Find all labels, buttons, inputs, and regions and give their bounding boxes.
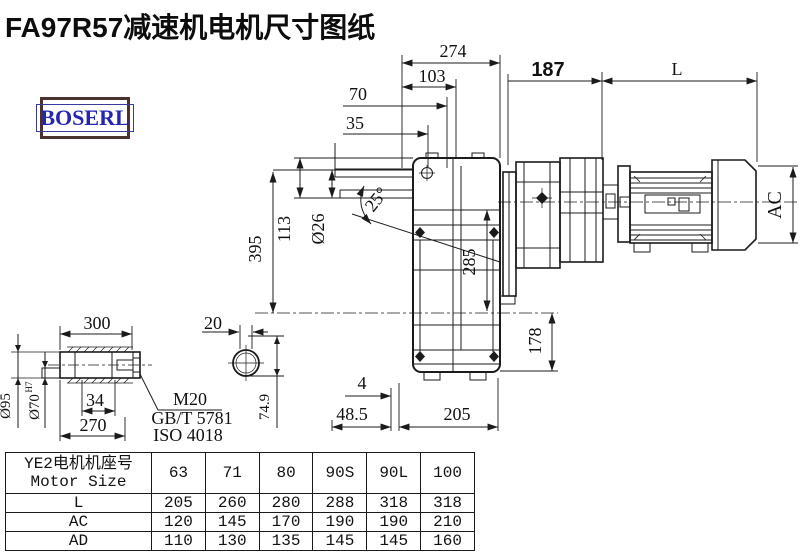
dim-4: 4: [358, 373, 367, 393]
dim-300: 300: [84, 313, 111, 333]
dim-35: 35: [346, 113, 364, 133]
dim-34: 34: [86, 390, 104, 410]
table-cell: 210: [421, 513, 475, 532]
dim-dia70: Ø70: [27, 394, 43, 420]
dim-270: 270: [80, 415, 107, 435]
dim-187: 187: [531, 59, 564, 81]
dim-274: 274: [440, 41, 467, 61]
dim-AC: AC: [764, 191, 786, 219]
col-90S: 90S: [313, 453, 367, 494]
dim-dia95: Ø95: [0, 393, 14, 419]
dim-dia26: Ø26: [308, 214, 328, 245]
dim-205: 205: [444, 404, 471, 424]
table-cell: 280: [259, 494, 313, 513]
dim-178: 178: [525, 328, 545, 355]
col-90L: 90L: [367, 453, 421, 494]
row-label-AC: AC: [6, 513, 152, 532]
table-cell: 190: [313, 513, 367, 532]
dim-285: 285: [459, 249, 479, 276]
table-cell: 130: [205, 532, 259, 551]
dim-103: 103: [419, 66, 446, 86]
table-cell: 170: [259, 513, 313, 532]
table-cell: 260: [205, 494, 259, 513]
dimension-lines: [15, 63, 793, 436]
table-row-AC: AC 120 145 170 190 190 210: [6, 513, 475, 532]
row-label-L: L: [6, 494, 152, 513]
dim-48-5: 48.5: [336, 404, 368, 424]
table-cell: 160: [421, 532, 475, 551]
motor-size-header-cn: YE2电机机座号: [6, 455, 151, 473]
motor-size-header-en: Motor Size: [6, 473, 151, 491]
table-row-AD: AD 110 130 135 145 145 160: [6, 532, 475, 551]
table-cell: 145: [367, 532, 421, 551]
col-63: 63: [152, 453, 206, 494]
dim-74-9: 74.9: [257, 394, 273, 420]
row-label-AD: AD: [6, 532, 152, 551]
dim-113: 113: [274, 216, 294, 242]
standard-iso: ISO 4018: [153, 425, 223, 445]
bolt-hole-markers: [415, 227, 499, 362]
table-cell: 135: [259, 532, 313, 551]
dim-395: 395: [245, 236, 265, 263]
table-cell: 318: [421, 494, 475, 513]
col-71: 71: [205, 453, 259, 494]
table-cell: 110: [152, 532, 206, 551]
thread-spec: M20: [173, 389, 207, 409]
drawing-sheet: FA97R57减速机电机尺寸图纸 BOSERL: [0, 0, 800, 555]
table-cell: 288: [313, 494, 367, 513]
dim-20: 20: [204, 313, 222, 333]
table-cell: 318: [367, 494, 421, 513]
table-cell: 145: [205, 513, 259, 532]
dim-25deg: 25°: [361, 183, 392, 215]
r57-bolt-marker: [532, 188, 552, 208]
r57-and-motor-view: [498, 158, 798, 304]
table-cell: 120: [152, 513, 206, 532]
dim-L: L: [672, 59, 683, 79]
col-100: 100: [421, 453, 475, 494]
dim-dia70-tolerance: H7: [24, 381, 34, 392]
table-cell: 145: [313, 532, 367, 551]
table-row-L: L 205 260 280 288 318 318: [6, 494, 475, 513]
extension-lines: [60, 55, 798, 441]
motor-size-header: YE2电机机座号 Motor Size: [6, 453, 152, 494]
motor-size-table: YE2电机机座号 Motor Size 63 71 80 90S 90L 100…: [5, 452, 475, 551]
col-80: 80: [259, 453, 313, 494]
table-header-row: YE2电机机座号 Motor Size 63 71 80 90S 90L 100: [6, 453, 475, 494]
table-cell: 205: [152, 494, 206, 513]
dim-70: 70: [349, 84, 367, 104]
table-cell: 190: [367, 513, 421, 532]
